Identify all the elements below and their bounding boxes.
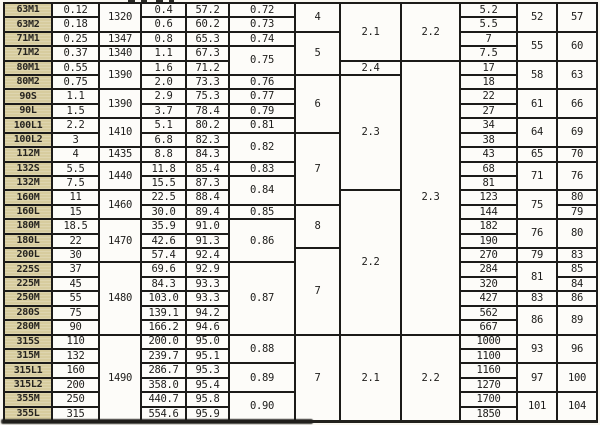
ratio-col8-cell: 2.1: [341, 336, 400, 420]
model-cell: 225S: [5, 263, 51, 275]
value-col10-cell: 5.2: [461, 4, 516, 16]
value-col12-cell: 70: [558, 148, 596, 160]
current-a-cell: 200.0: [142, 336, 185, 348]
power-kw-cell: 4: [53, 148, 98, 160]
current-a-cell: 2.9: [142, 90, 185, 102]
current-a-cell: 166.2: [142, 321, 185, 333]
model-cell: 280M: [5, 321, 51, 333]
value-col12-cell: 69: [558, 119, 596, 146]
current-a-cell: 42.6: [142, 235, 185, 247]
power-kw-cell: 132: [53, 350, 98, 362]
model-cell: 180M: [5, 220, 51, 232]
speed-rpm-cell: 1460: [100, 191, 140, 218]
model-cell: 225M: [5, 278, 51, 290]
value-col11-cell: 83: [518, 292, 556, 304]
value-col12-cell: 89: [558, 307, 596, 334]
model-cell: 71M2: [5, 47, 51, 59]
efficiency-pct-cell: 71.2: [187, 62, 228, 74]
value-col10-cell: 182: [461, 220, 516, 232]
value-col10-cell: 81: [461, 177, 516, 189]
efficiency-pct-cell: 95.3: [187, 364, 228, 376]
header-cutoff-remnant: [141, 0, 147, 2]
power-kw-cell: 160: [53, 364, 98, 376]
value-col10-cell: 18: [461, 76, 516, 88]
power-factor-cell: 0.84: [230, 177, 294, 204]
value-col11-cell: 93: [518, 336, 556, 363]
current-a-cell: 0.8: [142, 33, 185, 45]
value-col10-cell: 7: [461, 33, 516, 45]
model-cell: 280S: [5, 307, 51, 319]
value-col10-cell: 1000: [461, 336, 516, 348]
power-kw-cell: 55: [53, 292, 98, 304]
spec-table: 63M163M271M171M280M180M290S90L100L1100L2…: [3, 2, 598, 423]
power-kw-cell: 11: [53, 191, 98, 203]
power-factor-cell: 0.86: [230, 220, 294, 261]
current-a-cell: 57.4: [142, 249, 185, 261]
model-cell: 63M1: [5, 4, 51, 16]
value-col10-cell: 22: [461, 90, 516, 102]
efficiency-pct-cell: 92.4: [187, 249, 228, 261]
ratio-col9-cell: 2.2: [402, 336, 459, 420]
efficiency-pct-cell: 91.3: [187, 235, 228, 247]
model-cell: 100L2: [5, 134, 51, 146]
ratio-col7-cell: 5: [296, 33, 339, 74]
ratio-col8-cell: 2.4: [341, 62, 400, 74]
value-col10-cell: 43: [461, 148, 516, 160]
value-col11-cell: 76: [518, 220, 556, 247]
scanned-page: 63M163M271M171M280M180M290S90L100L1100L2…: [0, 0, 600, 425]
efficiency-pct-cell: 94.6: [187, 321, 228, 333]
model-cell: 200L: [5, 249, 51, 261]
current-a-cell: 139.1: [142, 307, 185, 319]
value-col11-cell: 61: [518, 90, 556, 117]
value-col10-cell: 562: [461, 307, 516, 319]
value-col10-cell: 667: [461, 321, 516, 333]
current-a-cell: 30.0: [142, 206, 185, 218]
power-kw-cell: 0.37: [53, 47, 98, 59]
efficiency-pct-cell: 95.1: [187, 350, 228, 362]
current-a-cell: 0.6: [142, 18, 185, 30]
power-factor-cell: 0.88: [230, 336, 294, 363]
value-col10-cell: 144: [461, 206, 516, 218]
power-kw-cell: 45: [53, 278, 98, 290]
bottom-edge-line: [300, 420, 597, 423]
power-factor-cell: 0.89: [230, 364, 294, 391]
efficiency-pct-cell: 93.3: [187, 278, 228, 290]
power-factor-cell: 0.85: [230, 206, 294, 218]
value-col10-cell: 68: [461, 163, 516, 175]
power-kw-cell: 75: [53, 307, 98, 319]
value-col10-cell: 27: [461, 105, 516, 117]
model-cell: 90S: [5, 90, 51, 102]
model-cell: 90L: [5, 105, 51, 117]
current-a-cell: 286.7: [142, 364, 185, 376]
speed-rpm-cell: 1470: [100, 220, 140, 261]
value-col11-cell: 55: [518, 33, 556, 60]
ratio-col7-cell: 7: [296, 134, 339, 204]
power-factor-cell: 0.79: [230, 105, 294, 117]
model-cell: 250M: [5, 292, 51, 304]
power-kw-cell: 7.5: [53, 177, 98, 189]
value-col10-cell: 7.5: [461, 47, 516, 59]
value-col11-cell: 52: [518, 4, 556, 31]
value-col12-cell: 83: [558, 249, 596, 261]
power-factor-cell: 0.77: [230, 90, 294, 102]
value-col10-cell: 34: [461, 119, 516, 131]
header-cutoff-remnant: [169, 0, 174, 2]
power-kw-cell: 3: [53, 134, 98, 146]
efficiency-pct-cell: 85.4: [187, 163, 228, 175]
model-cell: 80M1: [5, 62, 51, 74]
power-kw-cell: 0.55: [53, 62, 98, 74]
ratio-col9-cell: 2.2: [402, 4, 459, 60]
efficiency-pct-cell: 94.2: [187, 307, 228, 319]
efficiency-pct-cell: 92.9: [187, 263, 228, 275]
model-cell: 132M: [5, 177, 51, 189]
value-col11-cell: 58: [518, 62, 556, 89]
power-kw-cell: 0.75: [53, 76, 98, 88]
current-a-cell: 84.3: [142, 278, 185, 290]
efficiency-pct-cell: 87.3: [187, 177, 228, 189]
model-cell: 160M: [5, 191, 51, 203]
ratio-col7-cell: 4: [296, 4, 339, 31]
value-col11-cell: 81: [518, 263, 556, 290]
value-col11-cell: 97: [518, 364, 556, 391]
value-col11-cell: 101: [518, 393, 556, 420]
power-kw-cell: 1.5: [53, 105, 98, 117]
model-cell: 355M: [5, 393, 51, 405]
power-kw-cell: 2.2: [53, 119, 98, 131]
value-col11-cell: 86: [518, 307, 556, 334]
value-col12-cell: 104: [558, 393, 596, 420]
bottom-edge-smudge: [1, 419, 313, 424]
current-a-cell: 3.7: [142, 105, 185, 117]
current-a-cell: 69.6: [142, 263, 185, 275]
value-col12-cell: 63: [558, 62, 596, 89]
value-col12-cell: 80: [558, 191, 596, 203]
ratio-col8-cell: 2.3: [341, 76, 400, 189]
efficiency-pct-cell: 80.2: [187, 119, 228, 131]
value-col10-cell: 190: [461, 235, 516, 247]
current-a-cell: 1.1: [142, 47, 185, 59]
efficiency-pct-cell: 82.3: [187, 134, 228, 146]
value-col10-cell: 1850: [461, 408, 516, 420]
ratio-col7-cell: 7: [296, 249, 339, 333]
speed-rpm-cell: 1435: [100, 148, 140, 160]
model-cell: 315M: [5, 350, 51, 362]
ratio-col9-cell: 2.3: [402, 62, 459, 334]
value-col10-cell: 1100: [461, 350, 516, 362]
efficiency-pct-cell: 95.8: [187, 393, 228, 405]
current-a-cell: 2.0: [142, 76, 185, 88]
power-kw-cell: 90: [53, 321, 98, 333]
value-col10-cell: 1270: [461, 379, 516, 391]
power-factor-cell: 0.83: [230, 163, 294, 175]
efficiency-pct-cell: 73.3: [187, 76, 228, 88]
header-cutoff-remnant: [156, 0, 163, 2]
power-kw-cell: 0.25: [53, 33, 98, 45]
value-col12-cell: 80: [558, 220, 596, 247]
power-factor-cell: 0.87: [230, 263, 294, 333]
ratio-col7-cell: 7: [296, 336, 339, 420]
current-a-cell: 11.8: [142, 163, 185, 175]
speed-rpm-cell: 1340: [100, 47, 140, 59]
speed-rpm-cell: 1320: [100, 4, 140, 31]
value-col10-cell: 1160: [461, 364, 516, 376]
power-kw-cell: 110: [53, 336, 98, 348]
efficiency-pct-cell: 60.2: [187, 18, 228, 30]
value-col10-cell: 284: [461, 263, 516, 275]
value-col10-cell: 270: [461, 249, 516, 261]
speed-rpm-cell: 1480: [100, 263, 140, 333]
value-col11-cell: 71: [518, 163, 556, 190]
power-kw-cell: 37: [53, 263, 98, 275]
model-cell: 100L1: [5, 119, 51, 131]
value-col12-cell: 79: [558, 206, 596, 218]
model-cell: 71M1: [5, 33, 51, 45]
power-kw-cell: 22: [53, 235, 98, 247]
efficiency-pct-cell: 95.4: [187, 379, 228, 391]
efficiency-pct-cell: 84.3: [187, 148, 228, 160]
efficiency-pct-cell: 67.3: [187, 47, 228, 59]
power-kw-cell: 250: [53, 393, 98, 405]
value-col12-cell: 84: [558, 278, 596, 290]
model-cell: 315L1: [5, 364, 51, 376]
efficiency-pct-cell: 93.3: [187, 292, 228, 304]
value-col12-cell: 85: [558, 263, 596, 275]
value-col12-cell: 57: [558, 4, 596, 31]
ratio-col8-cell: 2.2: [341, 191, 400, 333]
value-col12-cell: 86: [558, 292, 596, 304]
power-factor-cell: 0.75: [230, 47, 294, 74]
power-kw-cell: 18.5: [53, 220, 98, 232]
current-a-cell: 103.0: [142, 292, 185, 304]
model-cell: 63M2: [5, 18, 51, 30]
value-col10-cell: 5.5: [461, 18, 516, 30]
efficiency-pct-cell: 88.4: [187, 191, 228, 203]
speed-rpm-cell: 1440: [100, 163, 140, 190]
speed-rpm-cell: 1347: [100, 33, 140, 45]
current-a-cell: 440.7: [142, 393, 185, 405]
speed-rpm-cell: 1390: [100, 90, 140, 117]
power-factor-cell: 0.81: [230, 119, 294, 131]
speed-rpm-cell: 1390: [100, 62, 140, 89]
power-factor-cell: 0.72: [230, 4, 294, 16]
value-col10-cell: 1700: [461, 393, 516, 405]
efficiency-pct-cell: 78.4: [187, 105, 228, 117]
power-kw-cell: 5.5: [53, 163, 98, 175]
model-cell: 315S: [5, 336, 51, 348]
current-a-cell: 0.4: [142, 4, 185, 16]
value-col10-cell: 123: [461, 191, 516, 203]
model-cell: 132S: [5, 163, 51, 175]
power-kw-cell: 1.1: [53, 90, 98, 102]
model-cell: 180L: [5, 235, 51, 247]
model-cell: 315L2: [5, 379, 51, 391]
current-a-cell: 35.9: [142, 220, 185, 232]
efficiency-pct-cell: 95.0: [187, 336, 228, 348]
speed-rpm-cell: 1410: [100, 119, 140, 146]
efficiency-pct-cell: 65.3: [187, 33, 228, 45]
current-a-cell: 358.0: [142, 379, 185, 391]
efficiency-pct-cell: 57.2: [187, 4, 228, 16]
value-col11-cell: 79: [518, 249, 556, 261]
value-col10-cell: 17: [461, 62, 516, 74]
power-factor-cell: 0.82: [230, 134, 294, 161]
current-a-cell: 8.8: [142, 148, 185, 160]
speed-rpm-cell: 1490: [100, 336, 140, 420]
model-cell: 160L: [5, 206, 51, 218]
ratio-col8-cell: 2.1: [341, 4, 400, 60]
model-cell: 80M2: [5, 76, 51, 88]
ratio-col7-cell: 8: [296, 206, 339, 247]
current-a-cell: 239.7: [142, 350, 185, 362]
value-col12-cell: 60: [558, 33, 596, 60]
power-kw-cell: 0.12: [53, 4, 98, 16]
ratio-col7-cell: 6: [296, 76, 339, 132]
value-col12-cell: 76: [558, 163, 596, 190]
value-col11-cell: 75: [518, 191, 556, 218]
current-a-cell: 6.8: [142, 134, 185, 146]
efficiency-pct-cell: 75.3: [187, 90, 228, 102]
current-a-cell: 5.1: [142, 119, 185, 131]
efficiency-pct-cell: 91.0: [187, 220, 228, 232]
value-col10-cell: 427: [461, 292, 516, 304]
current-a-cell: 15.5: [142, 177, 185, 189]
power-kw-cell: 15: [53, 206, 98, 218]
value-col11-cell: 65: [518, 148, 556, 160]
power-kw-cell: 30: [53, 249, 98, 261]
value-col12-cell: 66: [558, 90, 596, 117]
value-col11-cell: 64: [518, 119, 556, 146]
power-factor-cell: 0.73: [230, 18, 294, 30]
power-factor-cell: 0.76: [230, 76, 294, 88]
current-a-cell: 1.6: [142, 62, 185, 74]
power-factor-cell: 0.90: [230, 393, 294, 420]
power-factor-cell: 0.74: [230, 33, 294, 45]
value-col12-cell: 96: [558, 336, 596, 363]
model-cell: 112M: [5, 148, 51, 160]
power-kw-cell: 200: [53, 379, 98, 391]
value-col10-cell: 38: [461, 134, 516, 146]
value-col12-cell: 100: [558, 364, 596, 391]
power-kw-cell: 0.18: [53, 18, 98, 30]
header-cutoff-remnant: [128, 0, 135, 2]
value-col10-cell: 320: [461, 278, 516, 290]
efficiency-pct-cell: 89.4: [187, 206, 228, 218]
current-a-cell: 22.5: [142, 191, 185, 203]
